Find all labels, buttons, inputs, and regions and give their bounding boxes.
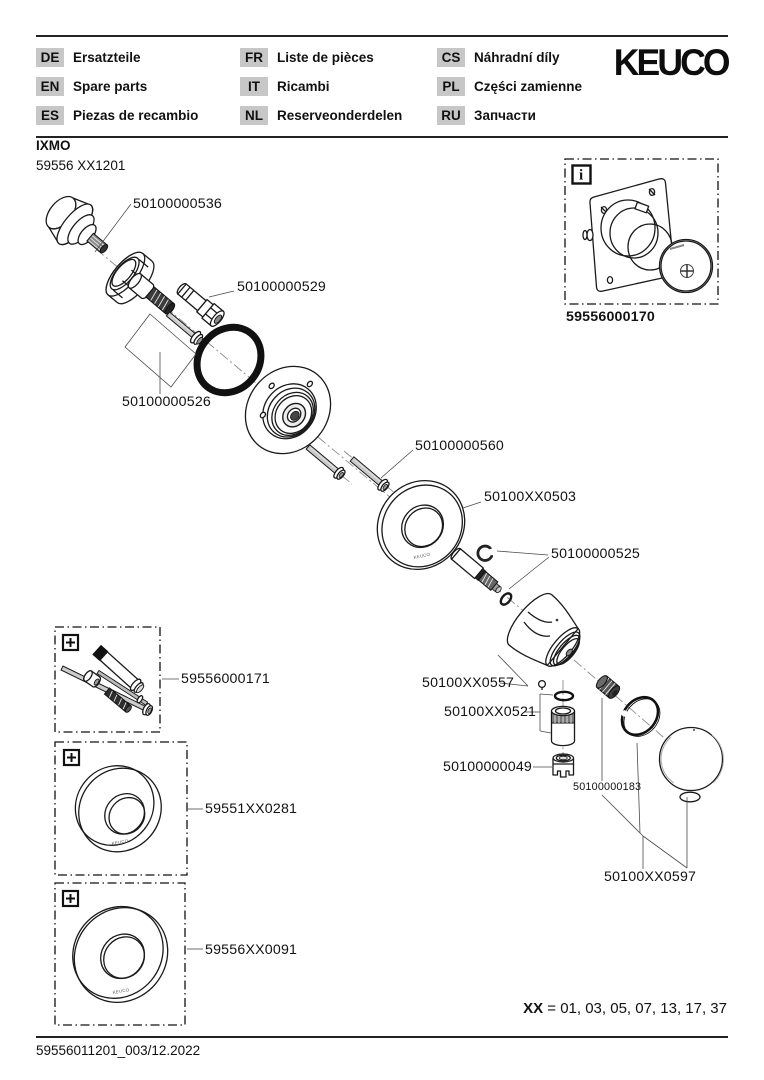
- addon-box-escutcheon-thick: KEUCO 59551XX0281: [55, 742, 297, 875]
- part-label-handle-base: 50100XX0557: [422, 675, 514, 691]
- addon-box-escutcheon-thin: KEUCO 59556XX0091: [53, 883, 297, 1025]
- part-label-spindle-set: 50100000525: [551, 546, 640, 562]
- info-box: i 595560001: [565, 159, 718, 325]
- svg-text:i: i: [579, 168, 583, 184]
- sleeve-part: [552, 706, 575, 745]
- part-label-rough-in-unit: 59556000170: [566, 309, 655, 325]
- o-ring-flat-part: [555, 692, 573, 700]
- knurled-nut-part: [594, 674, 621, 700]
- rough-in-unit-drawing: [583, 179, 713, 293]
- escutcheon-thin-drawing: [53, 887, 187, 1022]
- threaded-extension-part: [146, 287, 177, 316]
- check-valve-part: [553, 754, 574, 777]
- part-label-handle: 50100XX0597: [604, 869, 696, 885]
- extension-kit-drawing: [59, 645, 154, 717]
- plus-icon: [64, 750, 79, 765]
- mounting-screw-part: [348, 454, 391, 493]
- variant-note: XX = 01, 03, 05, 07, 13, 17, 37: [523, 1000, 727, 1017]
- info-icon: i: [573, 166, 591, 184]
- part-label-cartridge: 50100000536: [133, 196, 222, 212]
- part-label-escutcheon-thin: 59556XX0091: [205, 942, 297, 958]
- flange-part: [228, 349, 348, 471]
- handle-knob-part: [660, 728, 724, 802]
- part-label-sleeve: 50100XX0521: [444, 704, 536, 720]
- escutcheon-thick-drawing: [58, 748, 178, 869]
- part-label-escutcheon: 50100XX0503: [484, 489, 576, 505]
- spare-parts-page: DE Ersatzteile EN Spare parts ES Piezas …: [0, 0, 764, 1080]
- exploded-diagram: KEUCO: [0, 0, 764, 1080]
- document-id: 59556011201_003/12.2022: [36, 1043, 200, 1058]
- part-label-extension-parts: 50100000526: [122, 394, 211, 410]
- part-label-escutcheon-thick: 59551XX0281: [205, 801, 297, 817]
- plus-icon: [63, 891, 78, 906]
- o-ring-small-part: [499, 591, 513, 606]
- part-label-plug-screw: 50100000529: [237, 279, 326, 295]
- c-clip-part: [478, 546, 493, 560]
- variant-label: XX: [523, 1000, 543, 1017]
- part-label-screws: 50100000560: [415, 438, 504, 454]
- handle-base-part: [500, 587, 594, 681]
- mounting-screw-part: [304, 442, 347, 481]
- part-label-check-valve: 50100000049: [443, 759, 532, 775]
- variant-values: = 01, 03, 05, 07, 13, 17, 37: [547, 1000, 727, 1017]
- plus-icon: [63, 635, 78, 650]
- part-label-retaining-ring: 50100000183: [573, 781, 641, 793]
- cartridge-part: [37, 186, 122, 269]
- part-label-extension-kit: 59556000171: [181, 671, 270, 687]
- retaining-ring-part: [614, 690, 667, 744]
- set-screw-part: [539, 681, 546, 690]
- addon-box-extension-kit: 59556000171: [55, 627, 270, 732]
